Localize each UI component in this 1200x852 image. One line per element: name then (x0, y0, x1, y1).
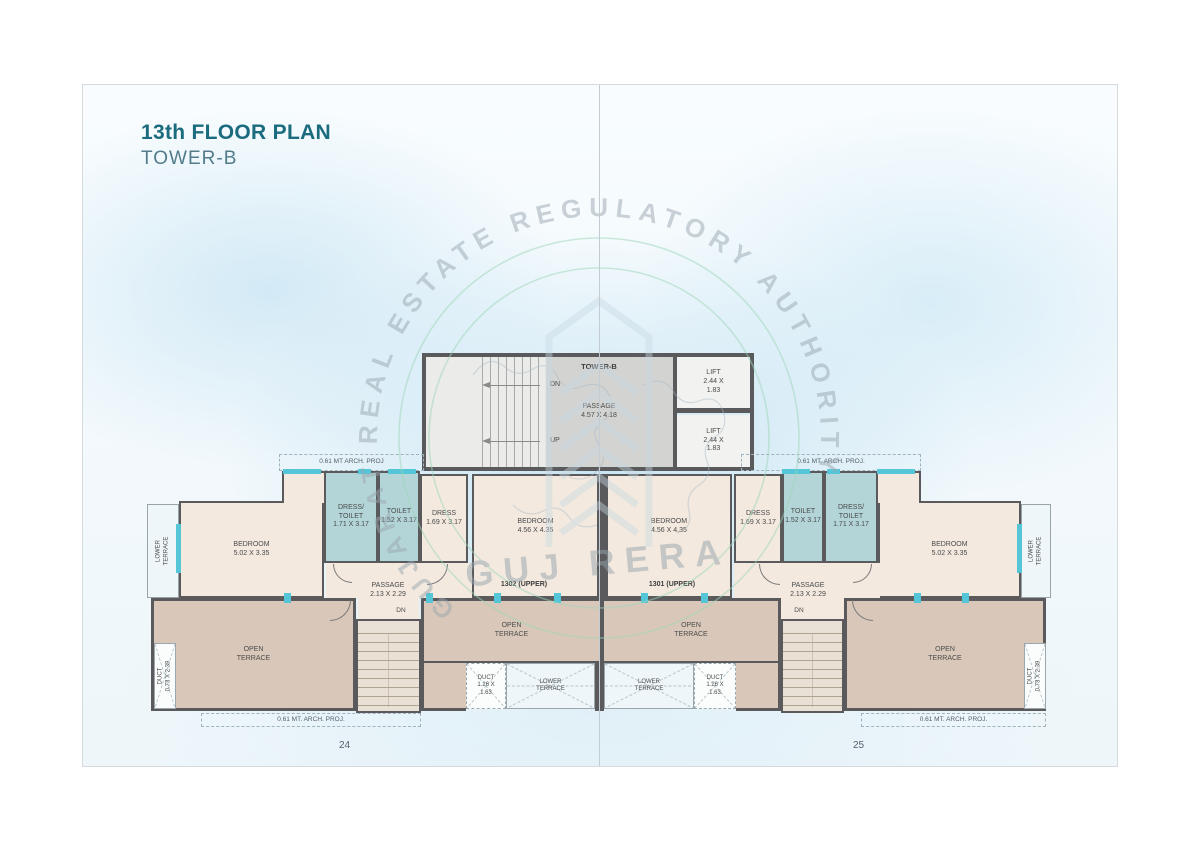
window (494, 593, 501, 603)
dress-left-label: DRESS 1.69 X 3.17 (426, 510, 462, 528)
arch-proj-top-right-label: 0.61 MT. ARCH. PROJ. (797, 458, 865, 466)
arch-proj-bottom-left-label: 0.61 MT. ARCH. PROJ. (277, 716, 345, 724)
duct-tall-right-label: DUCT 0.73 X 2.39 (1028, 661, 1043, 692)
open-terrace-left-inner-label: OPEN TERRACE (495, 622, 528, 640)
lower-terrace-right-label: LOWER TERRACE (1029, 537, 1044, 566)
dress-right: DRESS 1.69 X 3.17 (734, 474, 782, 563)
dress-toilet-left-label: DRESS/ TOILET 1.71 X 3.17 (333, 504, 369, 530)
arch-proj-bottom-right: 0.61 MT. ARCH. PROJ. (861, 713, 1046, 727)
bedroom-right-upper-ext (878, 471, 921, 503)
window (358, 469, 371, 474)
floor-plan-title: 13th FLOOR PLAN (141, 121, 331, 145)
duct-tall-left-label: DUCT 0.73 X 2.39 (158, 661, 173, 692)
window (284, 593, 291, 603)
passage-left-label: PASSAGE 2.13 X 2.29 (348, 582, 428, 600)
lift-bottom-cell: LIFT 2.44 X 1.83 (677, 415, 750, 467)
internal-stair-right-treads (783, 633, 842, 707)
page-title-block: 13th FLOOR PLAN TOWER-B (141, 121, 331, 170)
lower-terrace-center-right: LOWER TERRACE (604, 663, 694, 709)
dress-toilet-left: DRESS/ TOILET 1.71 X 3.17 (324, 471, 378, 563)
bedroom-1302-label: BEDROOM 4.56 X 4.35 (517, 518, 553, 536)
window (283, 469, 321, 474)
lower-terrace-center-right-label: LOWER TERRACE (635, 679, 664, 694)
page-number-right: 25 (853, 740, 864, 751)
window (641, 593, 648, 603)
stair-arrow-dn (484, 385, 540, 386)
bedroom-right-label: BEDROOM 5.02 X 3.35 (931, 541, 967, 559)
lift-bottom-label: LIFT 2.44 X 1.83 (703, 428, 723, 454)
bedroom-left-main: BEDROOM 5.02 X 3.35 (179, 501, 324, 598)
arch-proj-top-left-label: 0.61 MT ARCH. PROJ (319, 458, 384, 466)
lift-top-cell: LIFT 2.44 X 1.83 (677, 357, 750, 413)
window (554, 593, 561, 603)
duct-small-right: DUCT 1.26 X 1.63 (694, 663, 736, 709)
stair-up-label: UP (546, 437, 564, 446)
open-terrace-left-outer-label: OPEN TERRACE (237, 646, 270, 664)
toilet-left: TOILET 1.52 X 3.17 (378, 471, 420, 563)
stair-arrow-up (484, 441, 540, 442)
page-spine-divider (599, 85, 600, 766)
window (426, 593, 433, 603)
toilet-right-label: TOILET 1.52 X 3.17 (785, 508, 821, 526)
open-terrace-right-outer-label: OPEN TERRACE (928, 646, 961, 664)
open-terrace-right-inner-label: OPEN TERRACE (674, 622, 707, 640)
booklet-spread: 13th FLOOR PLAN TOWER-B DN UP TOWER-B PA… (0, 0, 1200, 852)
duct-small-right-label: DUCT 1.26 X 1.63 (706, 675, 723, 698)
arch-proj-bottom-left: 0.61 MT. ARCH. PROJ. (201, 713, 421, 727)
window (827, 469, 840, 474)
duct-small-left: DUCT 1.26 X 1.63 (466, 663, 506, 709)
dress-toilet-right: DRESS/ TOILET 1.71 X 3.17 (824, 471, 878, 563)
dress-right-label: DRESS 1.69 X 3.17 (740, 510, 776, 528)
tower-subtitle: TOWER-B (141, 148, 331, 170)
open-terrace-right-outer: OPEN TERRACE (844, 598, 1046, 711)
bedroom-right-main: BEDROOM 5.02 X 3.35 (878, 501, 1021, 598)
window (877, 469, 915, 474)
window (701, 593, 708, 603)
lower-terrace-center-left-label: LOWER TERRACE (536, 679, 565, 694)
open-terrace-right-inner: OPEN TERRACE (604, 598, 781, 663)
open-terrace-left-inner: OPEN TERRACE (421, 598, 599, 663)
open-terrace-right-patch (736, 663, 781, 711)
unit-1301-label: 1301 (UPPER) (637, 581, 707, 590)
lower-terrace-left-label: LOWER TERRACE (156, 537, 171, 566)
floor-plan-page: 13th FLOOR PLAN TOWER-B DN UP TOWER-B PA… (82, 84, 1118, 767)
lower-terrace-center-left: LOWER TERRACE (506, 663, 595, 709)
toilet-left-label: TOILET 1.52 X 3.17 (381, 508, 417, 526)
page-number-left: 24 (339, 740, 350, 751)
internal-stair-left (356, 619, 421, 713)
internal-stair-left-dn: DN (386, 607, 416, 615)
stair-dn-label: DN (546, 381, 564, 390)
open-terrace-left-outer: OPEN TERRACE (151, 598, 356, 711)
bedroom-1302: BEDROOM 4.56 X 4.35 (472, 474, 599, 598)
window (1017, 524, 1022, 573)
unit-1302-label: 1302 (UPPER) (489, 581, 559, 590)
internal-stair-right (781, 619, 844, 713)
toilet-right: TOILET 1.52 X 3.17 (782, 471, 824, 563)
arch-proj-bottom-right-label: 0.61 MT. ARCH. PROJ. (920, 716, 988, 724)
internal-stair-left-treads (358, 633, 419, 707)
dress-left: DRESS 1.69 X 3.17 (420, 474, 468, 563)
passage-right-label: PASSAGE 2.13 X 2.29 (768, 582, 848, 600)
window (914, 593, 921, 603)
window (176, 524, 181, 573)
bedroom-left-upper-ext (282, 471, 324, 503)
dress-toilet-right-label: DRESS/ TOILET 1.71 X 3.17 (833, 504, 869, 530)
duct-small-left-label: DUCT 1.26 X 1.63 (477, 675, 494, 698)
window (782, 469, 810, 474)
internal-stair-right-dn: DN (784, 607, 814, 615)
bedroom-1301-label: BEDROOM 4.56 X 4.35 (651, 518, 687, 536)
open-terrace-left-patch (421, 663, 466, 711)
core-staircase (422, 353, 546, 471)
bedroom-1301: BEDROOM 4.56 X 4.35 (606, 474, 732, 598)
stair-treads (482, 357, 544, 467)
lift-top-label: LIFT 2.44 X 1.83 (703, 369, 723, 395)
window (388, 469, 416, 474)
window (962, 593, 969, 603)
bedroom-left-label: BEDROOM 5.02 X 3.35 (233, 541, 269, 559)
